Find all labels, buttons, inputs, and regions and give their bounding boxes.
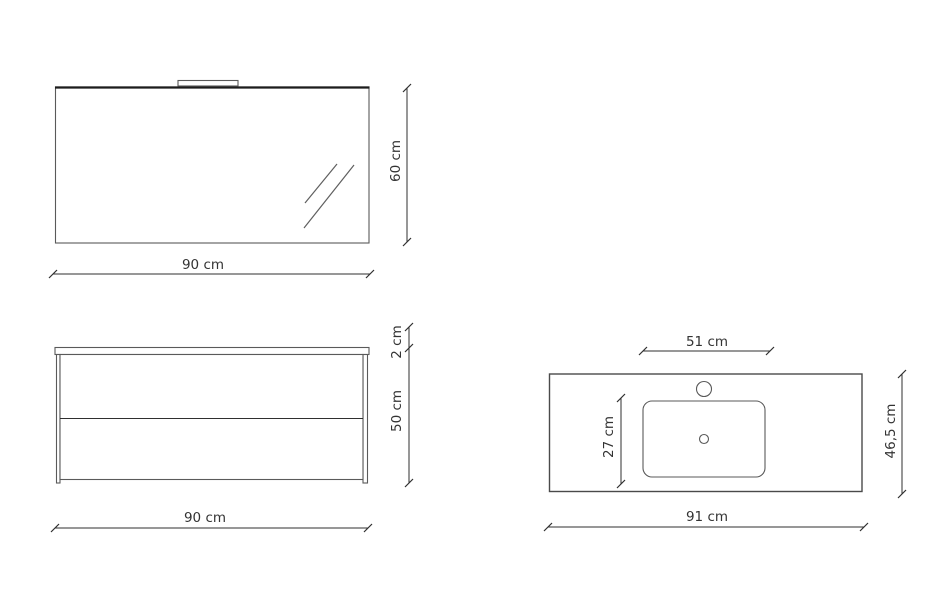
cabinet-height-label: 50 cm bbox=[389, 390, 405, 432]
countertop-depth-label: 46,5 cm bbox=[883, 404, 899, 459]
mirror-light-fixture bbox=[178, 81, 238, 87]
mirror-front-view: 60 cm 90 cm bbox=[49, 81, 411, 279]
countertop-width-dimension: 91 cm bbox=[544, 509, 868, 531]
drain-hole bbox=[700, 435, 709, 444]
faucet-hole bbox=[697, 382, 712, 397]
cabinet-drawer-fronts bbox=[60, 355, 363, 480]
cabinet-front-view: 2 cm 50 cm 90 cm bbox=[51, 323, 413, 532]
cabinet-right-side-panel bbox=[363, 355, 368, 484]
cabinet-height-dimension: 2 cm 50 cm bbox=[389, 323, 413, 487]
mirror-width-dimension: 90 cm bbox=[49, 257, 374, 278]
mirror-height-dimension: 60 cm bbox=[388, 84, 411, 246]
basin-depth-label: 27 cm bbox=[601, 416, 617, 458]
countertop-depth-dimension: 46,5 cm bbox=[883, 370, 906, 498]
mirror-width-label: 90 cm bbox=[182, 257, 224, 273]
cabinet-top-thickness-label: 2 cm bbox=[389, 325, 405, 358]
technical-drawing: 60 cm 90 cm bbox=[0, 0, 942, 616]
cabinet-width-dimension: 90 cm bbox=[51, 510, 372, 532]
countertop-top-view: 51 cm 27 cm 46,5 cm 91 cm bbox=[544, 334, 906, 531]
basin-width-label: 51 cm bbox=[686, 334, 728, 350]
cabinet-top-panel bbox=[55, 348, 369, 355]
basin-width-dimension: 51 cm bbox=[639, 334, 774, 355]
mirror-height-label: 60 cm bbox=[388, 140, 404, 182]
mirror-body bbox=[56, 87, 370, 243]
countertop-width-label: 91 cm bbox=[686, 509, 728, 525]
drawing-canvas: 60 cm 90 cm bbox=[0, 0, 942, 616]
cabinet-width-label: 90 cm bbox=[184, 510, 226, 526]
